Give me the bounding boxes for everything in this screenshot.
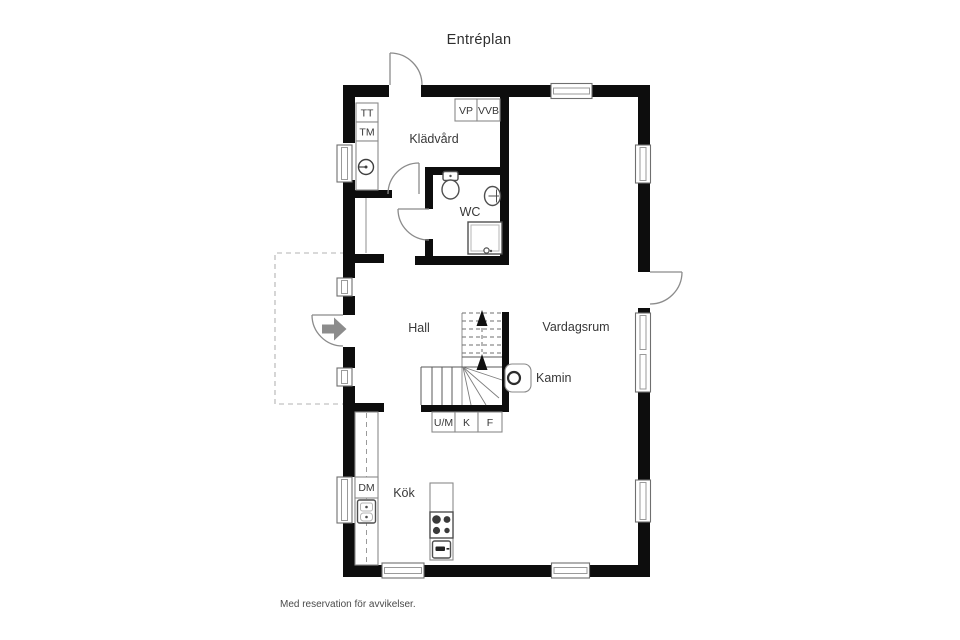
wall-wc-top: [425, 167, 500, 175]
door-kladvard-exterior: [390, 53, 422, 85]
label-kladvard: Klädvård: [409, 132, 458, 146]
label-tm: TM: [359, 127, 374, 139]
wall-stair-bottom: [421, 405, 509, 412]
label-hall: Hall: [408, 321, 430, 335]
window-right-upper: [636, 145, 651, 183]
wall-wc-bottom: [415, 256, 509, 265]
page-title: Entréplan: [447, 32, 512, 48]
label-dm: DM: [358, 482, 374, 494]
wall-right-1: [638, 85, 650, 145]
window-bottom-right: [552, 563, 590, 578]
window-right-tall: [636, 313, 651, 392]
floorplan-drawing: Entréplan: [0, 0, 960, 640]
door-kladvard-interior: [388, 163, 419, 194]
staircase: [421, 310, 502, 405]
label-tt: TT: [361, 108, 374, 120]
wall-left-3: [343, 296, 355, 315]
wall-stair-right: [502, 312, 509, 412]
wall-wc-left-upper: [425, 167, 433, 209]
wall-top-mid: [421, 85, 551, 97]
label-kamin: Kamin: [536, 371, 571, 385]
window-top: [551, 84, 592, 99]
label-vp: VP: [459, 105, 473, 117]
window-bottom-left: [382, 563, 424, 578]
kitchen-fixtures: [355, 412, 502, 565]
wall-left-4: [343, 347, 355, 368]
stair-up-arrow-lower: [477, 354, 488, 370]
toilet-icon: [442, 172, 459, 200]
shower-icon: [468, 222, 502, 254]
window-left-kitchen: [337, 477, 352, 523]
appliance-labels: TT TM VP VVB DM U/M K F: [358, 105, 499, 494]
stair-up-arrow-upper: [477, 310, 488, 326]
cooktop-icon: [430, 512, 453, 538]
wall-right-5: [638, 522, 650, 577]
wall-right-4: [638, 392, 650, 480]
wall-corridor-bottom: [343, 254, 384, 263]
wall-left-5: [343, 386, 355, 477]
window-left-sidelight-lower: [337, 368, 352, 386]
fireplace: [505, 364, 531, 392]
door-vardagsrum-exterior: [650, 272, 682, 304]
label-vvb: VVB: [478, 105, 499, 117]
label-um: U/M: [434, 417, 453, 429]
door-wc: [398, 209, 429, 240]
label-k: K: [463, 417, 470, 429]
label-wc: WC: [460, 205, 481, 219]
label-vardagsrum: Vardagsrum: [542, 320, 609, 334]
wall-right-3: [638, 308, 650, 313]
fireplace-flue-icon: [508, 372, 520, 384]
kitchen-sink-icon: [358, 500, 376, 523]
window-right-lower: [636, 480, 651, 522]
disclaimer-text: Med reservation för avvikelser.: [280, 599, 416, 610]
wall-kladvard-bottom: [343, 190, 392, 198]
window-left-kladvard: [337, 145, 352, 182]
label-f: F: [487, 417, 493, 429]
floorplan-page: Entréplan: [0, 0, 960, 640]
wall-kitchen-top: [343, 403, 384, 412]
wall-left-6: [343, 523, 355, 577]
wall-right-2: [638, 183, 650, 272]
oven-icon: [433, 541, 451, 558]
wash-basin-icon: [485, 187, 501, 206]
label-kok: Kök: [393, 486, 415, 500]
wall-bottom-mid: [424, 565, 552, 577]
window-left-sidelight-upper: [337, 278, 352, 296]
wall-left-1: [343, 85, 355, 143]
entry-arrow-icon: [322, 318, 347, 341]
